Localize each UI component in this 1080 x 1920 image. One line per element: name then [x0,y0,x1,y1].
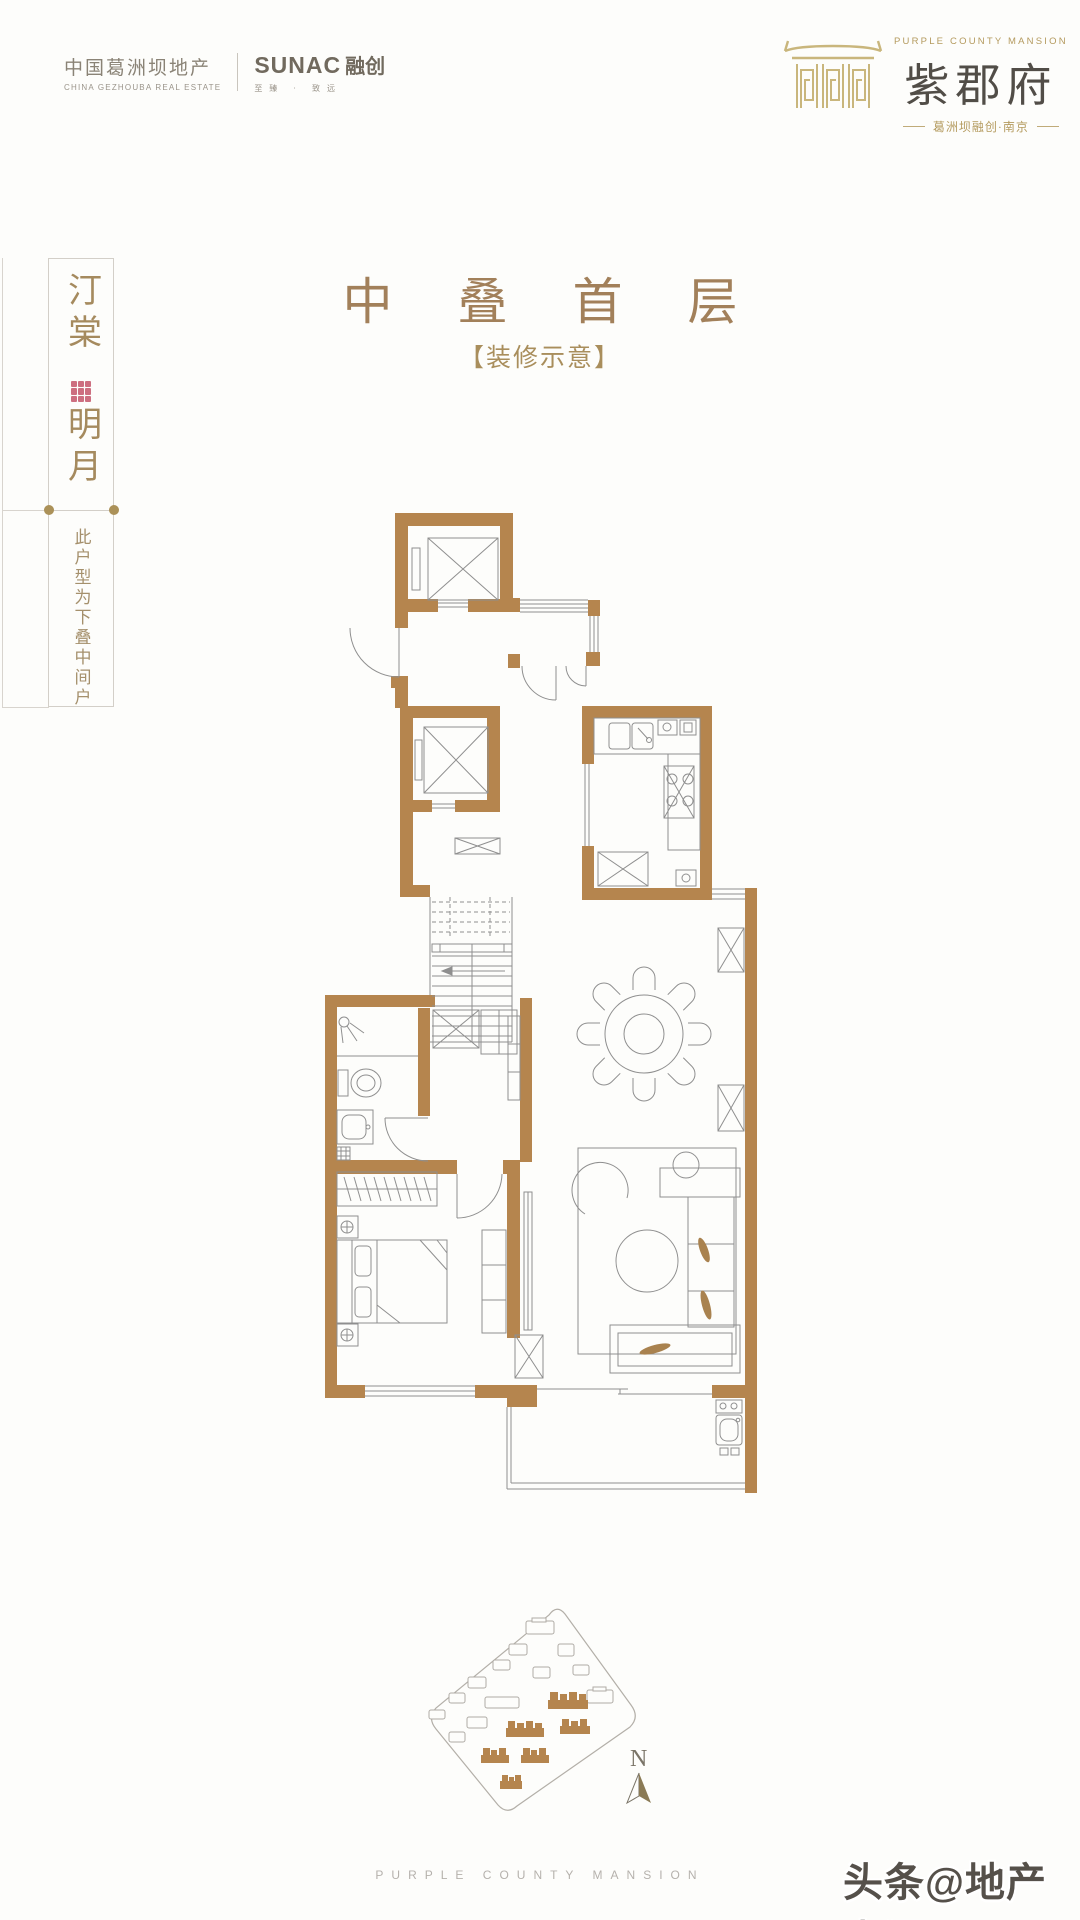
staircase [430,897,512,1042]
site-boundary [432,1609,636,1810]
seal-stamp-icon [71,381,91,402]
brand-divider-line [237,53,238,91]
duct-box-dining [718,928,744,972]
bedroom-door [457,1174,502,1218]
stair-hall-door [350,628,399,677]
gold-dot-right [109,505,119,515]
rail-connector-bottom [2,707,49,708]
project-subtitle: 葛洲坝融创·南京 [903,118,1059,135]
header-right-brand: PURPLE COUNTY MANSION 紫郡府 葛洲坝融创·南京 [782,36,1068,135]
unit-note: 此户型为下叠中间户 [48,528,114,708]
unit-entry-door [522,666,586,700]
bathroom-door [385,1118,428,1161]
window-kitchen-right [712,889,745,899]
dining-table [577,967,711,1101]
page-subtitle: 【装修示意】 [0,338,1080,374]
gezhouba-en-label: CHINA GEZHOUBA REAL ESTATE [64,83,221,92]
subtitle-left-line [903,126,925,127]
hall-storage [433,1010,520,1100]
elevator-shaft-lower [415,727,488,808]
rail-connector-top [2,510,49,511]
gold-dot-left [44,505,54,515]
unit-name-bottom: 明月 [48,406,114,490]
header-left-brand: 中国葛洲坝地产 CHINA GEZHOUBA REAL ESTATE SUNAC… [64,50,385,94]
balcony-railing [507,1407,745,1489]
duct-box-bedroom-wall [515,1335,543,1378]
sunac-slogan-label: 至臻 · 致远 [254,83,385,94]
duct-box-living [718,1085,744,1131]
living-room [524,1148,740,1373]
poster-page: 中国葛洲坝地产 CHINA GEZHOUBA REAL ESTATE SUNAC… [0,0,1080,1920]
gezhouba-cn-label: 中国葛洲坝地产 [64,53,221,80]
site-plan: N [400,1580,690,1815]
subtitle-right-line [1037,126,1059,127]
walls [325,513,757,1493]
sunac-cn-label: 融创 [345,50,385,79]
floor-plan-drawing [250,495,780,1505]
window-top-strip [520,600,588,612]
toutiao-watermark: 头条@地产点评 [843,1850,1080,1920]
elevator-shaft-top [412,538,498,607]
window-entry-side [590,616,598,652]
sunac-logo: SUNAC 融创 至臻 · 致远 [254,50,385,94]
kitchen [585,718,700,886]
balcony-slider [537,1389,712,1394]
bedroom [337,1172,506,1346]
bathroom [337,1017,418,1160]
balcony [716,1400,742,1455]
window-bedroom [365,1386,475,1396]
unit-card-divider [48,510,114,511]
sunac-latin-label: SUNAC [254,52,341,79]
compass-icon: N [627,1746,651,1803]
project-sub-label: 葛洲坝融创·南京 [933,118,1029,135]
compass-north-label: N [630,1746,647,1772]
project-en-label: PURPLE COUNTY MANSION [894,36,1068,47]
gezhouba-logo: 中国葛洲坝地产 CHINA GEZHOUBA REAL ESTATE [64,53,221,92]
page-title: 中叠首层 [0,262,1080,334]
vent-shaft [455,838,500,854]
project-cn-label: 紫郡府 [904,49,1057,114]
gate-pavilion-icon [782,36,884,117]
